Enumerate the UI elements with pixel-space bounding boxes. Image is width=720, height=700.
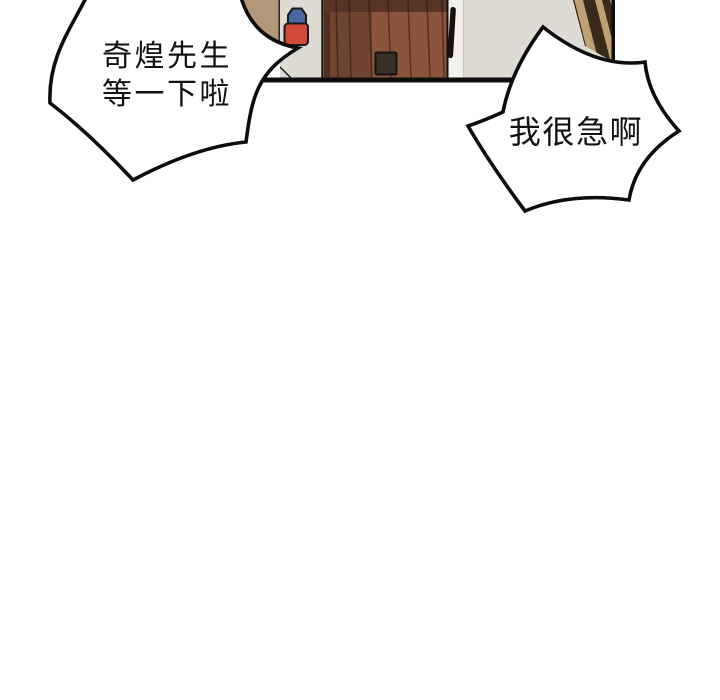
door-kick-plate — [376, 53, 397, 75]
panel-right-border — [612, 0, 616, 61]
left-bubble-line-1: 奇煌先生 — [57, 38, 277, 76]
comic-page: 奇煌先生 等一下啦 我很急啊 — [0, 0, 720, 700]
fire-extinguisher — [285, 9, 309, 46]
wooden-plank-door — [324, 0, 447, 78]
left-bubble-line-2: 等一下啦 — [57, 76, 277, 114]
fire-extinguisher-body — [285, 24, 309, 46]
left-bubble-text: 奇煌先生 等一下啦 — [57, 38, 277, 114]
right-bubble-text: 我很急啊 — [466, 114, 686, 151]
door-top-band — [324, 0, 447, 12]
right-bubble-line-1: 我很急啊 — [466, 114, 686, 151]
